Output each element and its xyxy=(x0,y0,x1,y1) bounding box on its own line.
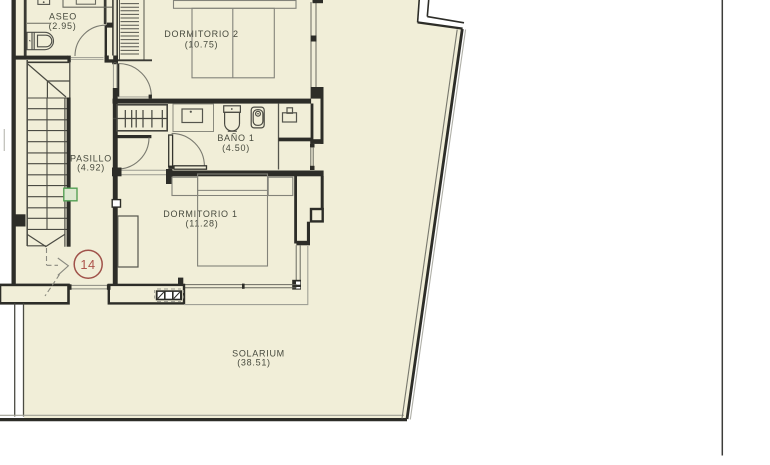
svg-text:DORMITORIO 1: DORMITORIO 1 xyxy=(163,209,237,219)
svg-text:DORMITORIO 2: DORMITORIO 2 xyxy=(164,29,238,39)
svg-text:BAÑO 1: BAÑO 1 xyxy=(217,133,254,143)
svg-text:ASEO: ASEO xyxy=(49,12,77,22)
svg-text:14: 14 xyxy=(80,257,95,272)
svg-text:(2.95): (2.95) xyxy=(49,21,77,31)
svg-text:(10.75): (10.75) xyxy=(185,40,219,50)
svg-text:(4.92): (4.92) xyxy=(77,163,105,173)
svg-text:(38.51): (38.51) xyxy=(237,358,271,368)
svg-text:(4.50): (4.50) xyxy=(222,143,250,153)
svg-text:(11.28): (11.28) xyxy=(186,219,219,229)
